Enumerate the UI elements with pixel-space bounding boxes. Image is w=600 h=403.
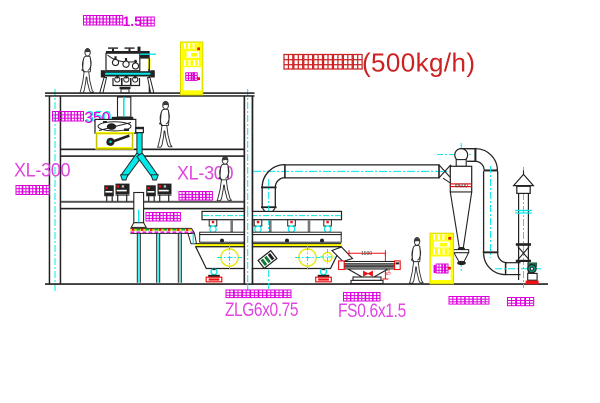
svg-text:1.5: 1.5: [123, 13, 143, 29]
svg-text:1500: 1500: [361, 251, 372, 257]
svg-text:XL-300: XL-300: [14, 160, 70, 182]
svg-text:ZLG6x0.75: ZLG6x0.75: [225, 298, 299, 320]
svg-text:(500kg/h): (500kg/h): [362, 48, 475, 78]
svg-text:FS0.6x1.5: FS0.6x1.5: [338, 299, 406, 321]
svg-text:Φ600: Φ600: [455, 183, 468, 189]
